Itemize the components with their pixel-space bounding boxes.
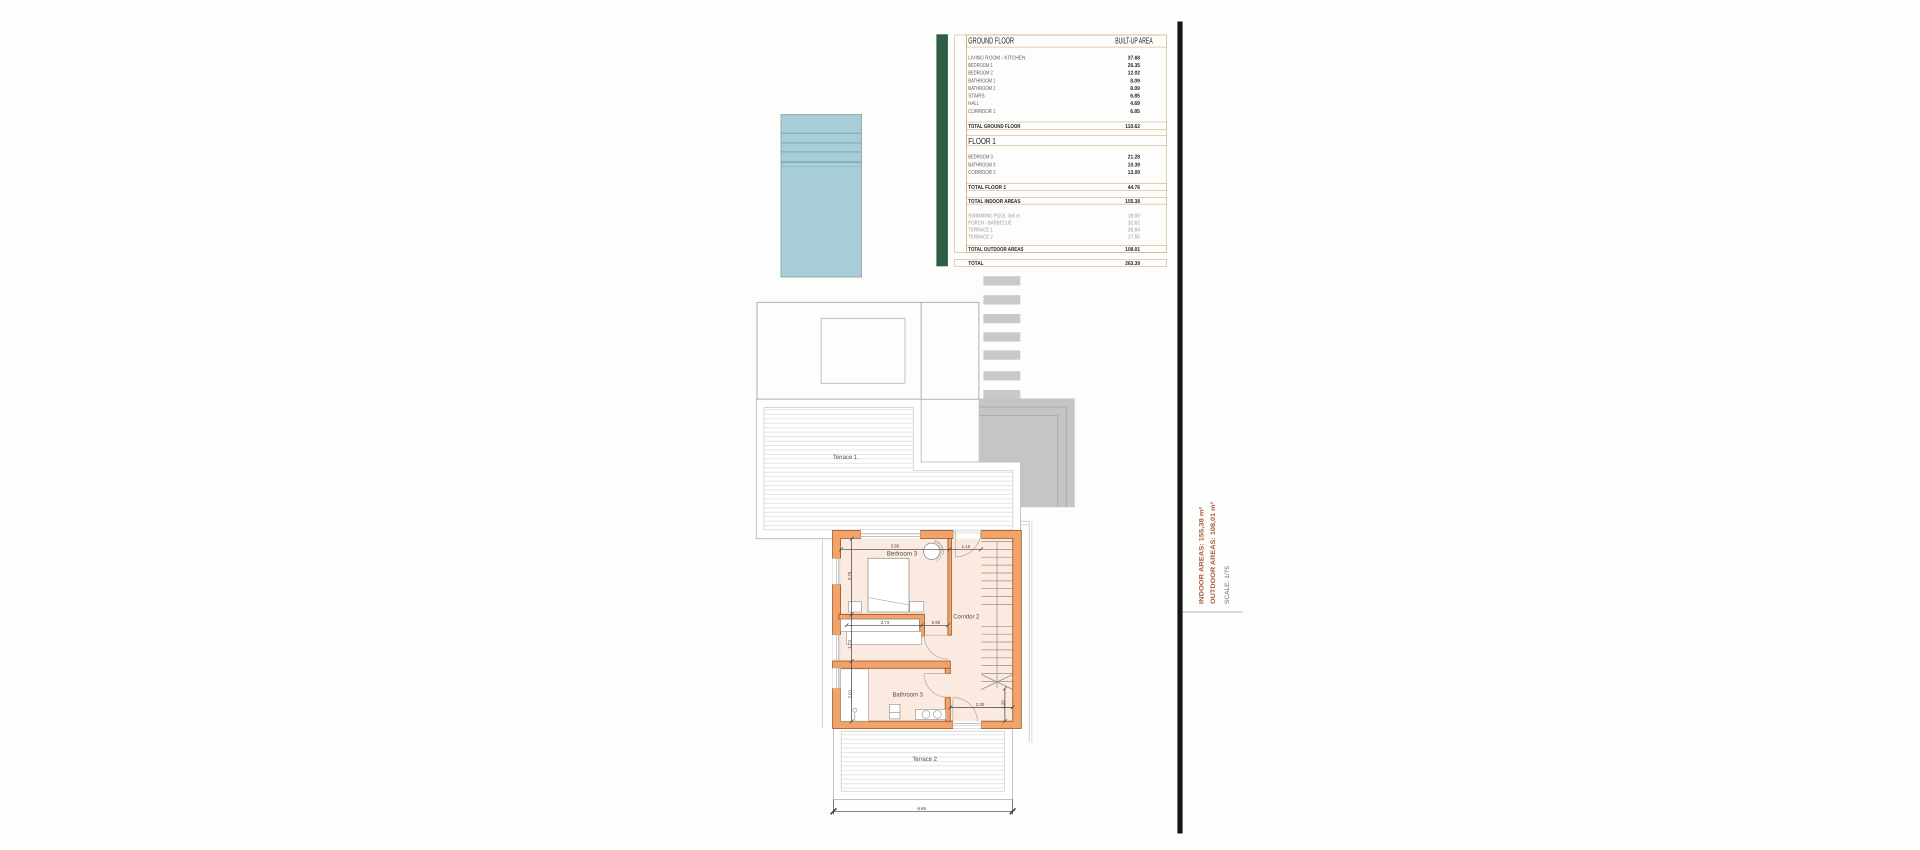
svg-text:PORCH - BARBECUE: PORCH - BARBECUE [968, 220, 1012, 226]
svg-text:1.20: 1.20 [1000, 700, 1005, 709]
svg-text:Terrace 1: Terrace 1 [833, 454, 858, 461]
svg-text:2.01: 2.01 [848, 689, 853, 698]
svg-text:BUILT-UP AREA: BUILT-UP AREA [1115, 36, 1153, 46]
svg-text:TOTAL: TOTAL [968, 261, 984, 267]
svg-text:BEDROOM 3: BEDROOM 3 [968, 155, 993, 161]
svg-text:STAIRS: STAIRS [968, 94, 985, 100]
svg-text:TERRACE 2: TERRACE 2 [968, 235, 993, 241]
svg-text:2.73: 2.73 [881, 620, 890, 625]
svg-text:3.95: 3.95 [891, 544, 900, 549]
svg-text:FLOOR 1: FLOOR 1 [968, 136, 996, 146]
svg-text:HALL: HALL [968, 101, 979, 107]
svg-text:Bedroom 3: Bedroom 3 [887, 550, 918, 557]
svg-text:1.73: 1.73 [847, 640, 852, 649]
svg-text:GROUND FLOOR: GROUND FLOOR [968, 36, 1014, 46]
svg-text:6.85: 6.85 [1130, 109, 1140, 115]
svg-text:CORRIDOR 1: CORRIDOR 1 [968, 109, 995, 115]
svg-text:SCALE: 1/75: SCALE: 1/75 [1224, 565, 1231, 604]
svg-text:8.09: 8.09 [1130, 86, 1140, 92]
svg-text:1.15: 1.15 [962, 544, 971, 549]
svg-text:44.76: 44.76 [1128, 185, 1140, 191]
svg-text:2.30: 2.30 [976, 702, 985, 707]
svg-text:LIVING ROOM - KITCHEN: LIVING ROOM - KITCHEN [968, 56, 1025, 62]
svg-text:21.28: 21.28 [1128, 155, 1140, 161]
svg-text:4.69: 4.69 [1130, 101, 1140, 107]
svg-text:BEDROOM 1: BEDROOM 1 [968, 63, 993, 69]
svg-text:8.09: 8.09 [1130, 78, 1140, 84]
svg-text:TOTAL OUTDOOR AREAS: TOTAL OUTDOOR AREAS [968, 247, 1023, 253]
svg-text:13.09: 13.09 [1128, 170, 1140, 176]
svg-text:OUTDOOR AREAS: 108,01 m²: OUTDOOR AREAS: 108,01 m² [1210, 501, 1217, 604]
svg-text:39.84: 39.84 [1128, 228, 1140, 234]
svg-text:37.68: 37.68 [1128, 56, 1140, 62]
svg-text:26.35: 26.35 [1128, 63, 1140, 69]
svg-text:0.92: 0.92 [932, 620, 941, 625]
svg-text:10.39: 10.39 [1128, 162, 1140, 168]
svg-text:108.01: 108.01 [1125, 247, 1140, 253]
svg-text:SWIMMING POOL 3x6 m: SWIMMING POOL 3x6 m [968, 213, 1020, 219]
svg-text:BATHROOM 3: BATHROOM 3 [968, 162, 995, 168]
svg-text:Corridor 2: Corridor 2 [953, 614, 980, 621]
svg-text:263.39: 263.39 [1125, 261, 1140, 267]
svg-text:Terrace 2: Terrace 2 [912, 756, 937, 763]
svg-text:12.02: 12.02 [1128, 71, 1140, 77]
svg-text:110.62: 110.62 [1125, 124, 1140, 130]
svg-text:TOTAL GROUND FLOOR: TOTAL GROUND FLOOR [968, 124, 1020, 130]
svg-text:BATHROOM 1: BATHROOM 1 [968, 78, 995, 84]
svg-text:TOTAL INDOOR AREAS: TOTAL INDOOR AREAS [968, 199, 1020, 205]
svg-text:155.38: 155.38 [1125, 199, 1140, 205]
svg-text:17.55: 17.55 [1128, 235, 1140, 241]
svg-text:2.75: 2.75 [847, 571, 852, 580]
svg-text:18.00: 18.00 [1128, 213, 1140, 219]
svg-text:INDOOR AREAS: 155,38 m²: INDOOR AREAS: 155,38 m² [1198, 506, 1205, 604]
svg-text:BEDROOM 2: BEDROOM 2 [968, 71, 993, 77]
svg-text:32.62: 32.62 [1128, 220, 1140, 226]
svg-text:CORRIDOR 2: CORRIDOR 2 [968, 170, 995, 176]
svg-text:BATHROOM 2: BATHROOM 2 [968, 86, 995, 92]
svg-text:6.65: 6.65 [918, 806, 927, 811]
svg-text:TOTAL FLOOR 1: TOTAL FLOOR 1 [968, 185, 1006, 191]
svg-text:6.85: 6.85 [1130, 94, 1140, 100]
svg-text:Bathroom 3: Bathroom 3 [892, 691, 923, 698]
svg-text:TERRACE 1: TERRACE 1 [968, 228, 993, 234]
